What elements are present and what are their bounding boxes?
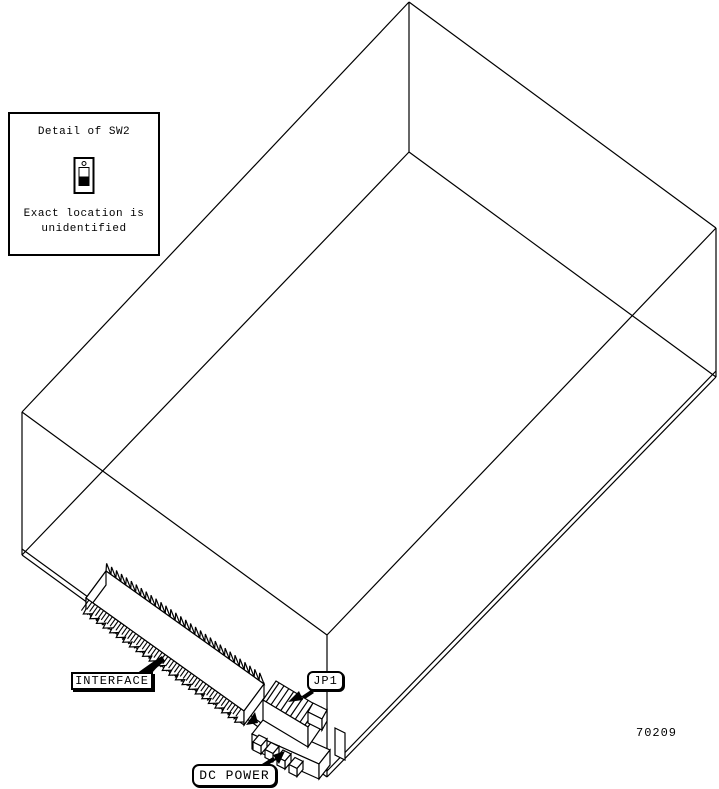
toggle-switch-icon <box>74 157 95 194</box>
detail-note-line2: unidentified <box>10 223 158 235</box>
connector-end-tab <box>335 728 345 760</box>
drive-isometric-diagram: Detail of SW2 Exact location is unidenti… <box>0 0 719 789</box>
figure-part-number: 70209 <box>636 726 677 740</box>
interface-connector <box>81 563 264 725</box>
interface-top-face <box>86 571 264 711</box>
detail-note-line1: Exact location is <box>10 208 158 220</box>
interface-callout-label: INTERFACE <box>71 672 153 690</box>
pcb-rim-lines <box>22 371 716 771</box>
detail-title: Detail of SW2 <box>10 126 158 138</box>
jp1-callout-label: JP1 <box>307 671 344 691</box>
jp1-leader-shaft <box>302 690 314 699</box>
switch-slider <box>79 167 90 186</box>
switch-dot <box>82 161 87 166</box>
detail-inset-box: Detail of SW2 Exact location is unidenti… <box>8 112 160 256</box>
dc-power-callout-label: DC POWER <box>192 764 277 787</box>
